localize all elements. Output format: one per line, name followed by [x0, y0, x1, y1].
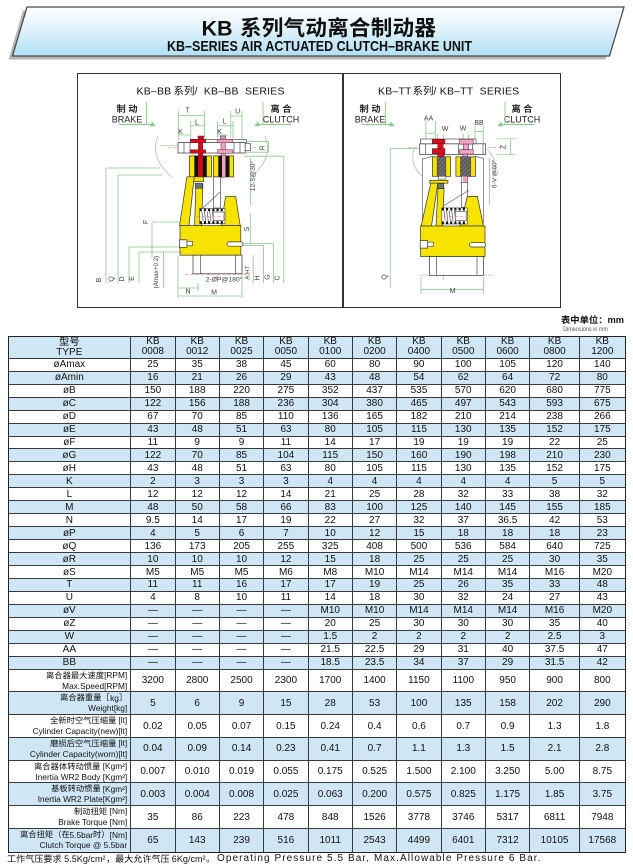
svg-text:S: S: [244, 226, 251, 231]
svg-text:W: W: [442, 126, 449, 133]
svg-text:6-V @60°: 6-V @60°: [491, 159, 499, 188]
svg-text:Q: Q: [382, 274, 389, 280]
svg-text:/ KB–TT SERIES: / KB–TT SERIES: [434, 86, 520, 98]
svg-text:C: C: [274, 275, 281, 280]
svg-text:KB–SERIES AIR ACTUATED CLUTCH–: KB–SERIES AIR ACTUATED CLUTCH–BRAKE UNIT: [167, 38, 472, 55]
svg-text:F: F: [143, 220, 150, 224]
svg-text:N: N: [185, 289, 190, 296]
svg-text:KB–BB: KB–BB: [137, 86, 175, 98]
svg-text:U: U: [235, 109, 240, 116]
svg-text:D: D: [119, 276, 126, 281]
svg-text:T: T: [186, 108, 191, 115]
svg-text:Z: Z: [501, 144, 508, 149]
svg-text:CLUTCH: CLUTCH: [504, 115, 541, 125]
svg-text:KB–TT: KB–TT: [378, 86, 415, 98]
svg-text:B: B: [96, 277, 103, 282]
svg-text:M: M: [211, 290, 217, 297]
svg-text:R: R: [260, 145, 267, 150]
svg-text:L: L: [223, 119, 227, 126]
svg-text:Q: Q: [109, 276, 116, 282]
svg-text:BB: BB: [474, 120, 484, 127]
svg-text:AA: AA: [424, 116, 434, 123]
svg-text:CLUTCH: CLUTCH: [263, 115, 300, 125]
svg-text:E: E: [129, 276, 136, 281]
svg-text:L: L: [195, 120, 199, 127]
svg-text:K: K: [217, 129, 222, 136]
svg-text:G: G: [264, 274, 271, 279]
svg-text:12-S@30°: 12-S@30°: [249, 161, 257, 192]
svg-text:BRAKE: BRAKE: [112, 115, 143, 125]
svg-text:A H7: A H7: [245, 265, 252, 279]
svg-text:BRAKE: BRAKE: [355, 115, 386, 125]
svg-text:W: W: [460, 126, 467, 133]
svg-text:/ KB–BB SERIES: / KB–BB SERIES: [195, 86, 285, 98]
svg-text:KB: KB: [202, 16, 233, 40]
svg-text:2-ØP@180°: 2-ØP@180°: [206, 276, 243, 284]
svg-text:H: H: [254, 275, 261, 280]
svg-text:(Amax+0.2): (Amax+0.2): [153, 256, 160, 289]
svg-text:K: K: [178, 129, 183, 136]
svg-text:M: M: [450, 288, 456, 295]
